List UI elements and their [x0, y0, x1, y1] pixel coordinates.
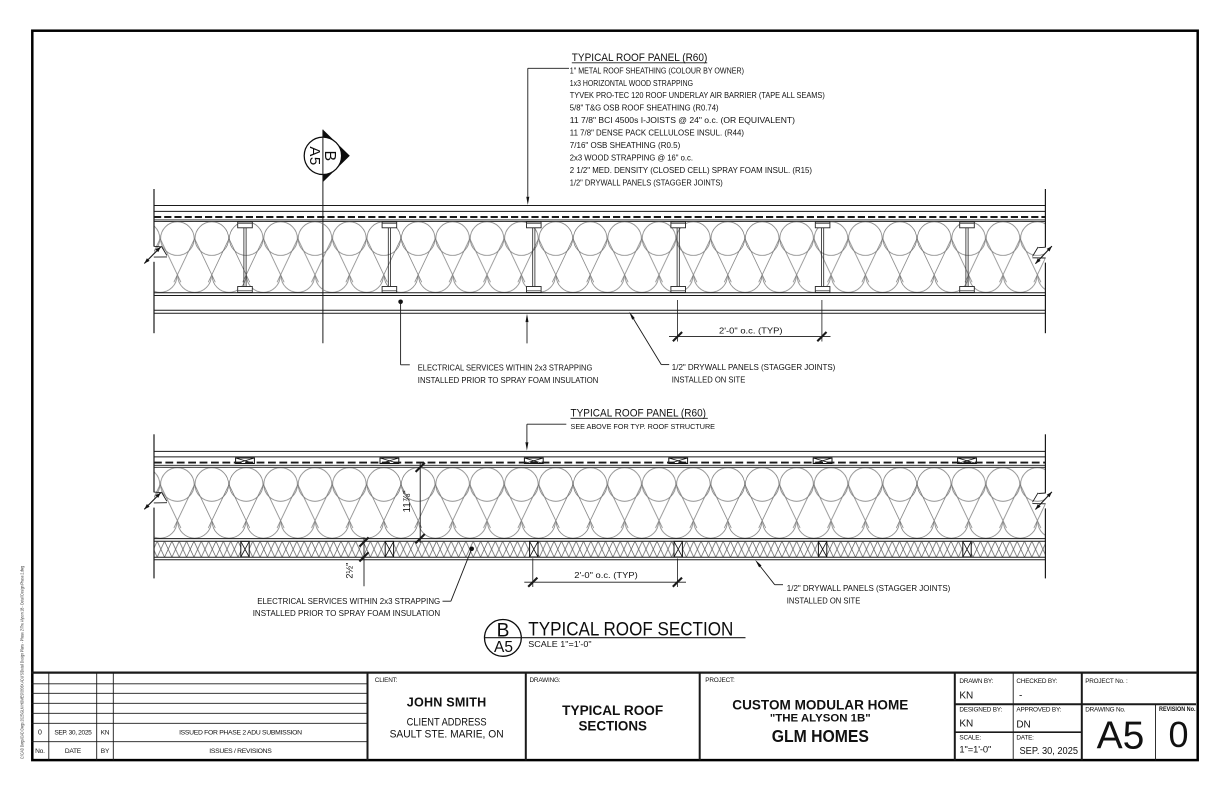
svg-text:A5: A5: [494, 639, 513, 656]
svg-text:2 1/2" MED. DENSITY (CLOSED CE: 2 1/2" MED. DENSITY (CLOSED CELL) SPRAY …: [570, 165, 812, 175]
svg-text:INSTALLED PRIOR TO SPRAY FOAM: INSTALLED PRIOR TO SPRAY FOAM INSULATION: [253, 608, 441, 618]
svg-text:SEE ABOVE FOR TYP. ROOF STRUCT: SEE ABOVE FOR TYP. ROOF STRUCTURE: [571, 422, 716, 431]
svg-text:DRAWN BY:: DRAWN BY:: [959, 678, 993, 685]
svg-text:2'-0" o.c. (TYP): 2'-0" o.c. (TYP): [719, 326, 783, 336]
svg-text:1x3 HORIZONTAL WOOD STRAPPING: 1x3 HORIZONTAL WOOD STRAPPING: [570, 78, 693, 88]
svg-text:JOHN SMITH: JOHN SMITH: [407, 696, 487, 710]
svg-text:CHECKED BY:: CHECKED BY:: [1016, 678, 1057, 685]
svg-text:TYPICAL ROOF PANEL (R60): TYPICAL ROOF PANEL (R60): [572, 52, 708, 64]
svg-text:1" METAL ROOF SHEATHING (COLOU: 1" METAL ROOF SHEATHING (COLOUR BY OWNER…: [570, 65, 744, 75]
svg-text:REVISION No.: REVISION No.: [1159, 706, 1196, 713]
svg-text:TYPICAL ROOF: TYPICAL ROOF: [562, 703, 663, 718]
svg-text:DRAWING No.: DRAWING No.: [1085, 706, 1126, 713]
svg-text:A5: A5: [306, 146, 323, 165]
svg-text:ELECTRICAL SERVICES WITHIN 2x3: ELECTRICAL SERVICES WITHIN 2x3 STRAPPING: [418, 363, 593, 373]
svg-text:CUSTOM MODULAR HOME: CUSTOM MODULAR HOME: [732, 697, 908, 713]
svg-text:11 7/8" BCI 4500s I-JOISTS @ 2: 11 7/8" BCI 4500s I-JOISTS @ 24" o.c. (O…: [570, 115, 795, 125]
svg-text:2x3 WOOD STRAPPING @ 16" o.c.: 2x3 WOOD STRAPPING @ 16" o.c.: [570, 152, 693, 162]
svg-text:"THE ALYSON 1B": "THE ALYSON 1B": [770, 712, 871, 724]
svg-text:0: 0: [1168, 714, 1188, 755]
svg-text:1/2" DRYWALL PANELS (STAGGER J: 1/2" DRYWALL PANELS (STAGGER JOINTS): [787, 583, 951, 593]
svg-text:INSTALLED PRIOR TO SPRAY FOAM: INSTALLED PRIOR TO SPRAY FOAM INSULATION: [418, 375, 599, 385]
svg-text:5/8" T&G OSB ROOF SHEATHING (R: 5/8" T&G OSB ROOF SHEATHING (R0.74): [570, 103, 719, 113]
svg-text:-: -: [1019, 690, 1022, 701]
svg-text:KN: KN: [101, 730, 110, 737]
svg-text:DN: DN: [1016, 719, 1030, 730]
svg-text:0: 0: [38, 730, 42, 737]
svg-text:11⅞": 11⅞": [402, 490, 413, 513]
svg-text:TYPICAL ROOF PANEL (R60): TYPICAL ROOF PANEL (R60): [571, 408, 707, 420]
svg-text:DRAWING:: DRAWING:: [530, 677, 561, 684]
svg-text:1/2" DRYWALL PANELS (STAGGER J: 1/2" DRYWALL PANELS (STAGGER JOINTS): [570, 177, 723, 187]
svg-text:SECTIONS: SECTIONS: [578, 719, 647, 734]
svg-text:PROJECT No. :: PROJECT No. :: [1085, 678, 1128, 685]
svg-text:ISSUES / REVISIONS: ISSUES / REVISIONS: [209, 748, 272, 755]
svg-text:A5: A5: [1097, 714, 1145, 757]
svg-text:SCALE:: SCALE:: [959, 734, 981, 741]
svg-text:DESIGNED BY:: DESIGNED BY:: [959, 706, 1002, 713]
svg-text:KN: KN: [959, 690, 973, 701]
svg-text:TYPICAL ROOF SECTION: TYPICAL ROOF SECTION: [528, 618, 733, 640]
svg-text:ELECTRICAL SERVICES WITHIN 2x3: ELECTRICAL SERVICES WITHIN 2x3 STRAPPING: [257, 596, 440, 606]
svg-text:DATE: DATE: [65, 748, 82, 755]
svg-text:CLIENT ADDRESS: CLIENT ADDRESS: [407, 717, 487, 729]
svg-text:No.: No.: [35, 748, 45, 755]
svg-text:CLIENT:: CLIENT:: [375, 677, 398, 684]
svg-text:C:\CAD Dwgs\CAD Dwgs 2025\GLM: C:\CAD Dwgs\CAD Dwgs 2025\GLM HOMES\0806…: [20, 566, 26, 759]
svg-text:BY: BY: [101, 748, 110, 755]
svg-text:APPROVED BY:: APPROVED BY:: [1016, 706, 1061, 713]
svg-text:SAULT STE. MARIE, ON: SAULT STE. MARIE, ON: [390, 728, 504, 740]
svg-text:11 7/8" DENSE PACK CELLULOSE I: 11 7/8" DENSE PACK CELLULOSE INSUL. (R44…: [570, 128, 744, 138]
svg-text:1/2" DRYWALL PANELS (STAGGER J: 1/2" DRYWALL PANELS (STAGGER JOINTS): [672, 362, 836, 372]
svg-text:1"=1'-0": 1"=1'-0": [959, 744, 991, 755]
svg-text:PROJECT:: PROJECT:: [705, 677, 735, 684]
svg-text:SEP. 30, 2025: SEP. 30, 2025: [1020, 746, 1079, 757]
svg-text:TYVEK PRO-TEC 120 ROOF UNDERLA: TYVEK PRO-TEC 120 ROOF UNDERLAY AIR BARR…: [570, 90, 825, 100]
svg-text:2'-0" o.c. (TYP): 2'-0" o.c. (TYP): [574, 570, 638, 580]
svg-text:GLM HOMES: GLM HOMES: [772, 726, 869, 746]
svg-text:INSTALLED ON SITE: INSTALLED ON SITE: [672, 374, 746, 384]
svg-text:DATE:: DATE:: [1016, 734, 1034, 741]
svg-text:2½": 2½": [345, 563, 355, 579]
svg-text:KN: KN: [959, 718, 973, 729]
svg-text:SCALE 1"=1'-0": SCALE 1"=1'-0": [528, 639, 591, 649]
svg-text:7/16" OSB SHEATHING (R0.5): 7/16" OSB SHEATHING (R0.5): [570, 140, 681, 150]
svg-text:INSTALLED ON SITE: INSTALLED ON SITE: [787, 596, 861, 606]
svg-text:ISSUED FOR PHASE 2 ADU SUBMISS: ISSUED FOR PHASE 2 ADU SUBMISSION: [179, 730, 302, 737]
svg-text:SEP. 30, 2025: SEP. 30, 2025: [54, 730, 92, 737]
